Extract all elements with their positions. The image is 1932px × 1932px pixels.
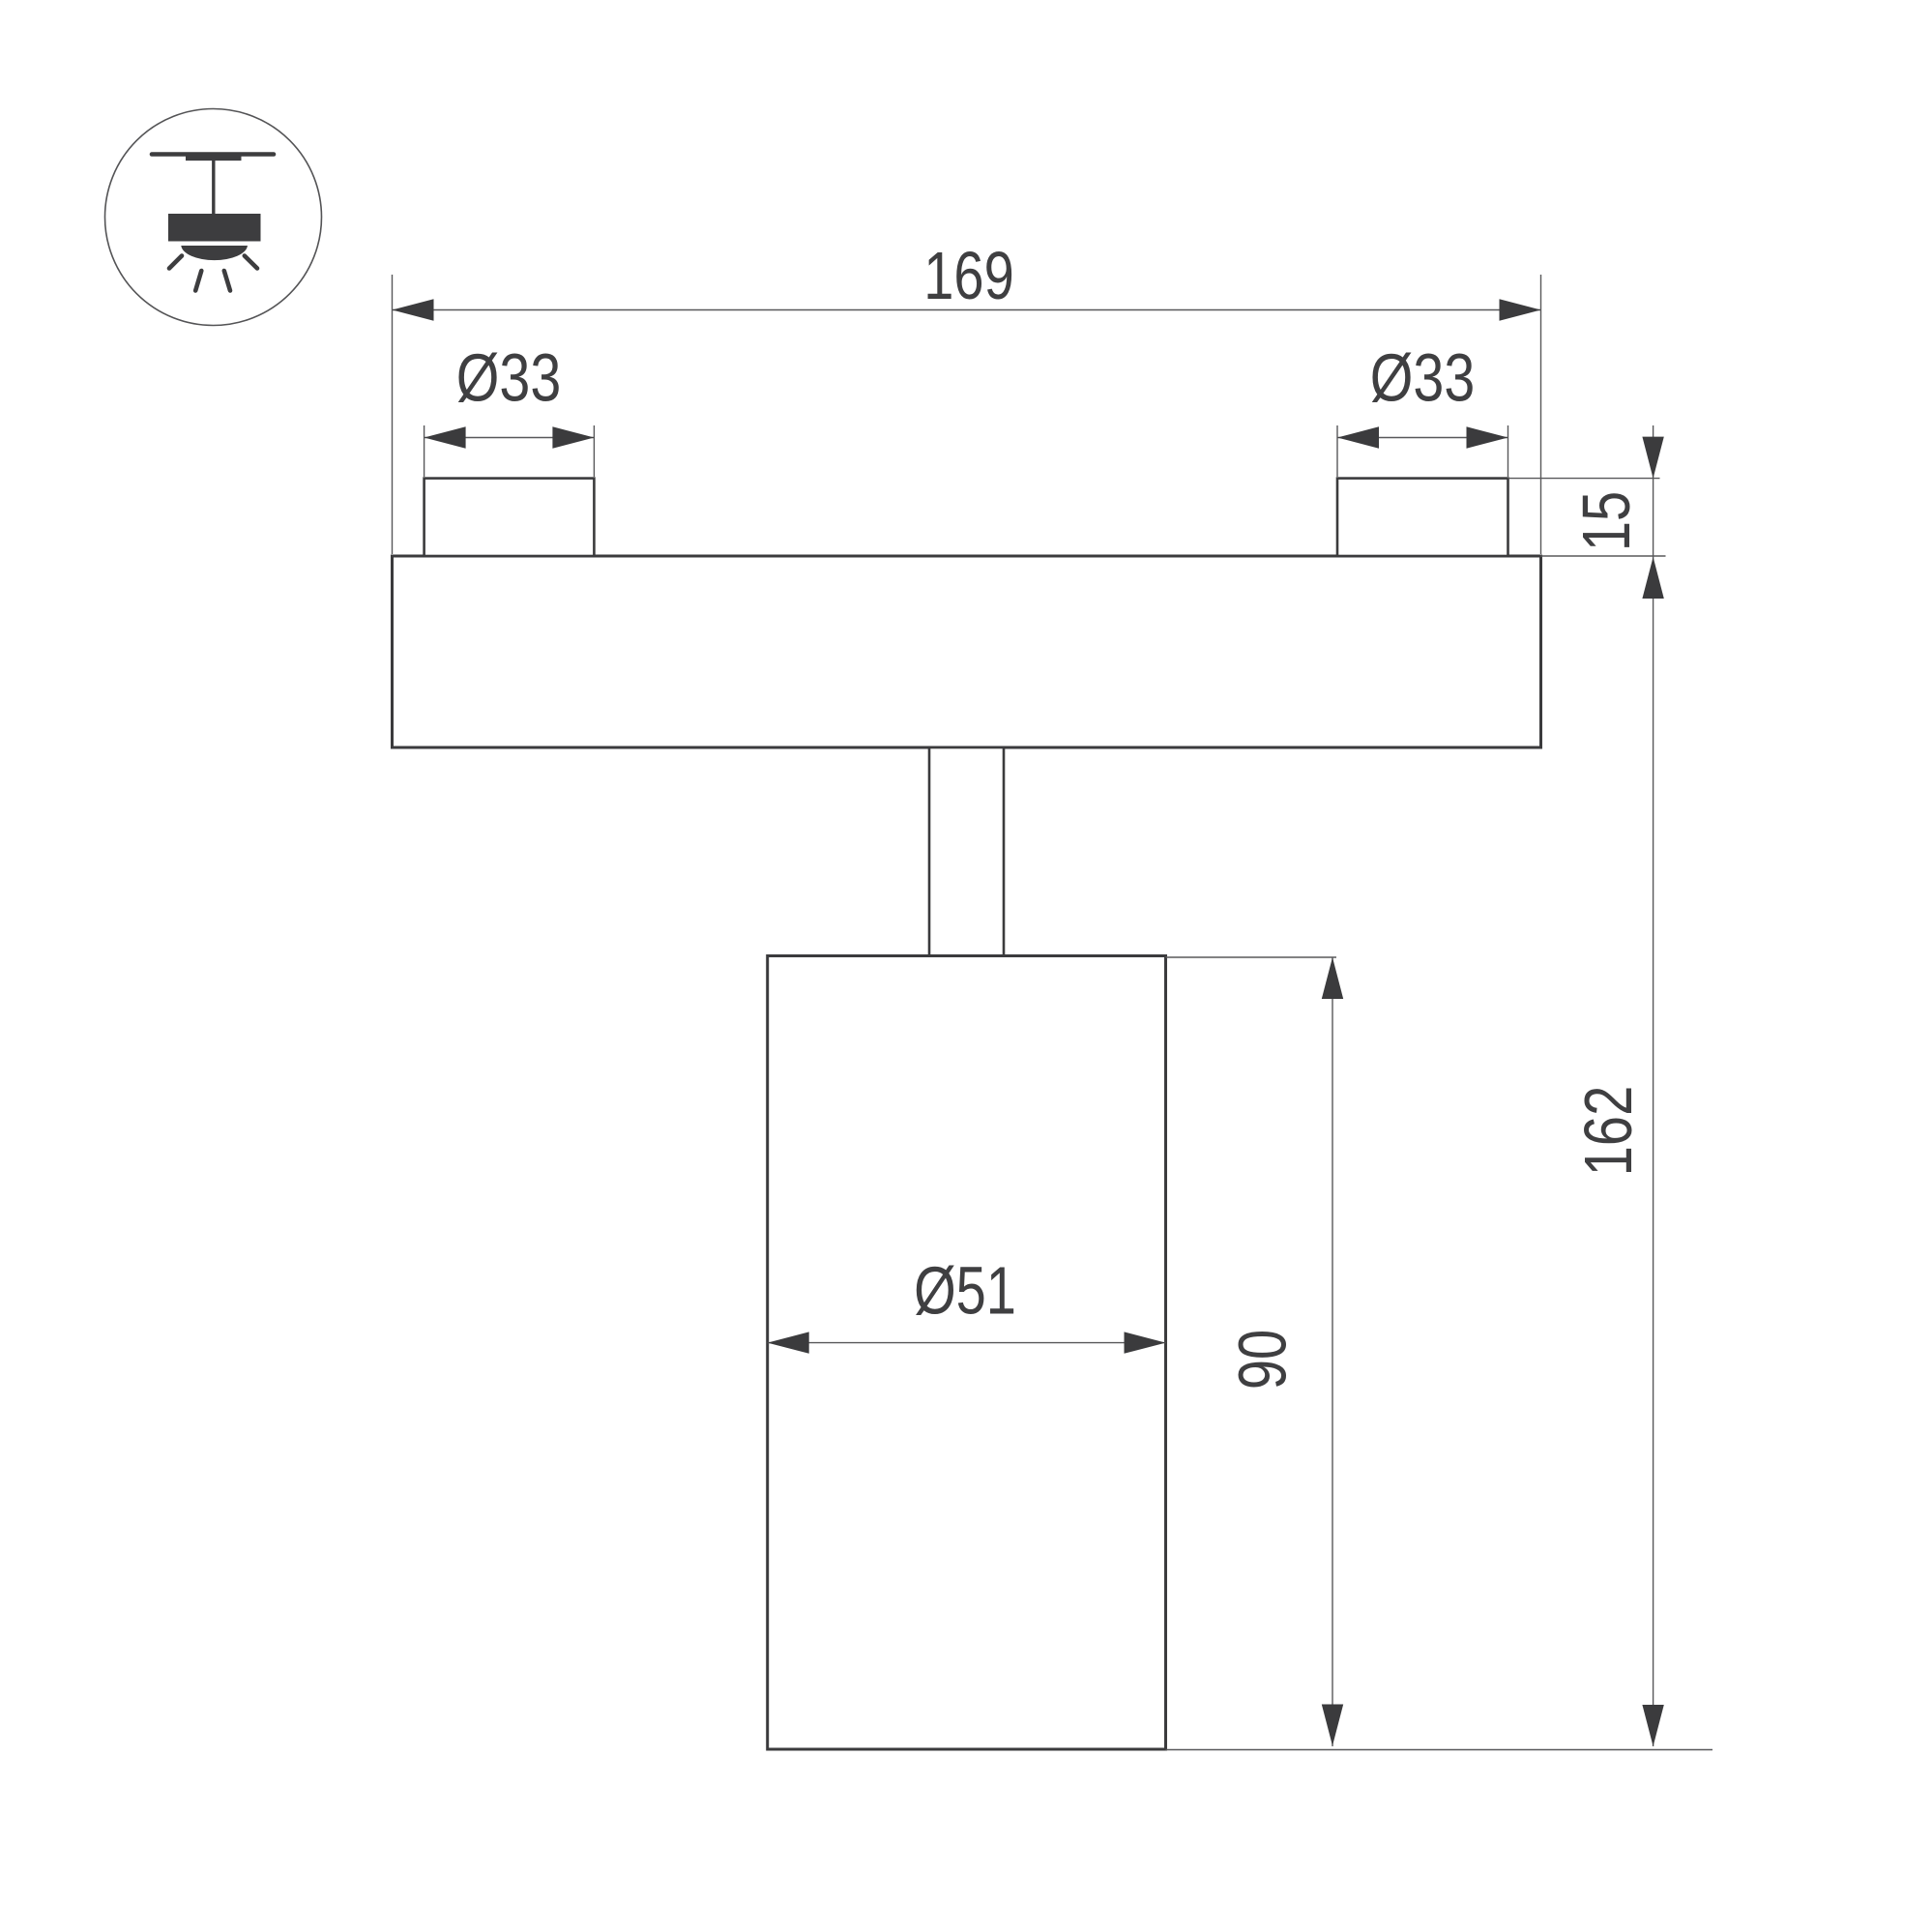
svg-text:Ø33: Ø33 — [1370, 339, 1475, 416]
svg-text:15: 15 — [1569, 491, 1644, 551]
svg-text:Ø51: Ø51 — [914, 1254, 1016, 1329]
svg-text:162: 162 — [1571, 1086, 1646, 1176]
svg-text:Ø33: Ø33 — [456, 339, 561, 416]
svg-text:169: 169 — [923, 239, 1013, 313]
svg-text:90: 90 — [1226, 1330, 1301, 1390]
